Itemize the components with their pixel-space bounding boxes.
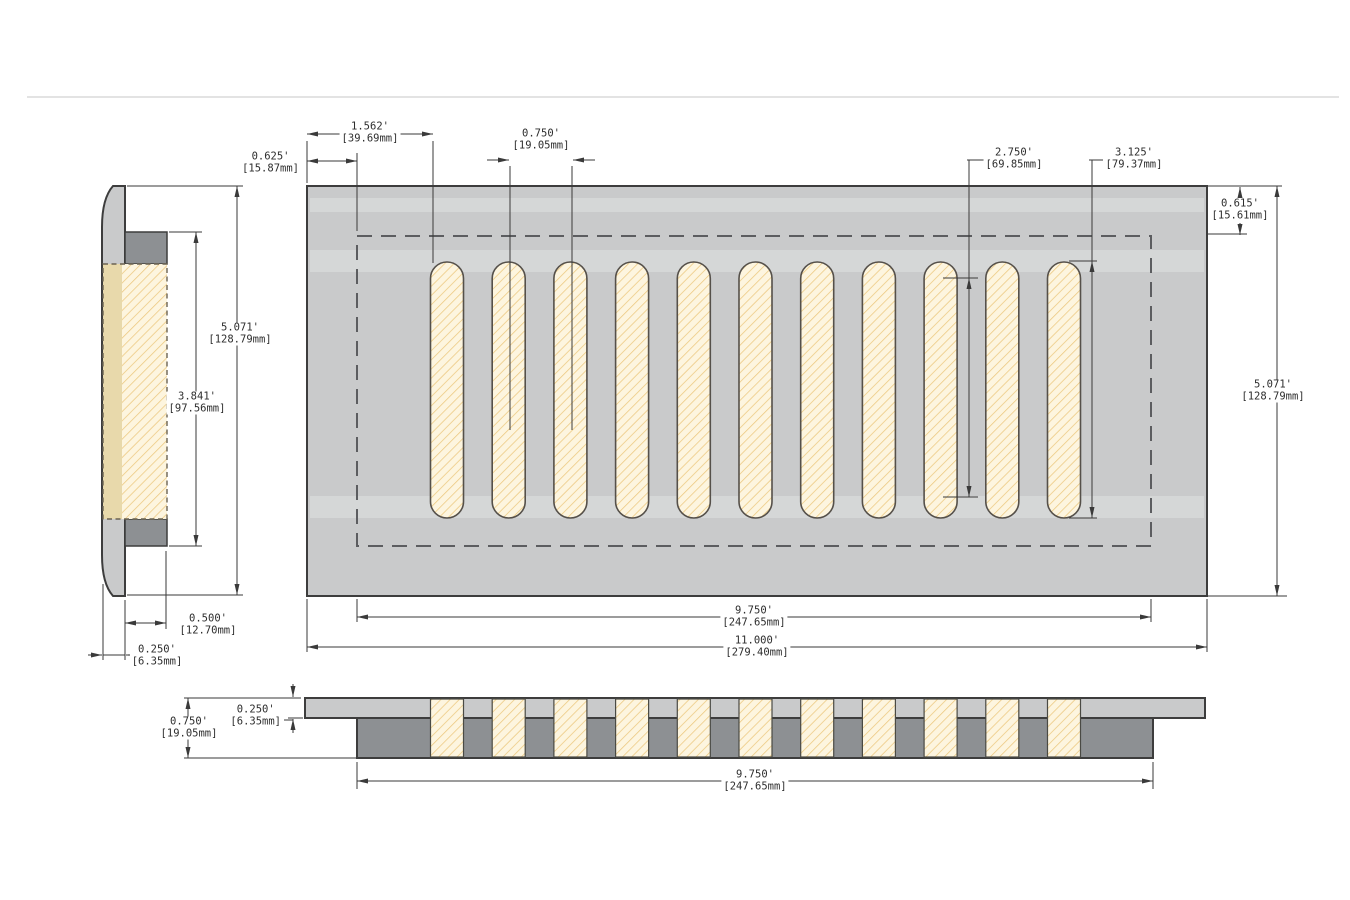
vent-slot [862, 262, 895, 518]
section-slot [739, 699, 772, 757]
dim-value-in: 0.750' [170, 717, 208, 729]
dim-value-mm: [19.05mm] [161, 728, 218, 740]
vent-slot [492, 262, 525, 518]
dim-value-in: 5.071' [1254, 380, 1292, 392]
dim-label-first-slot-offset: 1.562' [39.69mm] [340, 122, 401, 145]
vent-slot [924, 262, 957, 518]
dim-label-top-offset: 0.615' [15.61mm] [1210, 199, 1271, 222]
vent-slot [616, 262, 649, 518]
dim-value-mm: [15.61mm] [1212, 210, 1269, 222]
section-slot [862, 699, 895, 757]
section-slot [924, 699, 957, 757]
dim-value-in: 0.615' [1221, 199, 1259, 211]
dim-label-side-opening-height: 3.841' [97.56mm] [167, 392, 228, 415]
dim-value-in: 9.750' [736, 770, 774, 782]
vent-slot [431, 262, 464, 518]
vent-slot [739, 262, 772, 518]
vent-slot [554, 262, 587, 518]
dim-value-mm: [15.87mm] [242, 163, 299, 175]
collar-top-side [125, 232, 167, 264]
section-slot [431, 699, 464, 757]
dim-value-mm: [128.79mm] [1241, 391, 1304, 403]
duct-strip-side [103, 264, 122, 519]
dim-value-in: 3.841' [178, 392, 216, 404]
dim-value-in: 0.500' [189, 614, 227, 626]
dim-label-slot-inner-length: 2.750' [69.85mm] [984, 148, 1045, 171]
side-view [102, 186, 167, 596]
dim-value-in: 0.750' [522, 129, 560, 141]
section-view [305, 698, 1205, 758]
section-slot [677, 699, 710, 757]
section-slot [492, 699, 525, 757]
dim-label-section-opening-width: 9.750' [247.65mm] [721, 770, 788, 793]
dim-label-plan-height: 5.071' [128.79mm] [1239, 380, 1306, 403]
dim-label-side-face-thickness: 0.250' [6.35mm] [130, 645, 185, 668]
dim-label-collar-depth: 0.500' [12.70mm] [178, 614, 239, 637]
dim-value-mm: [247.65mm] [722, 617, 785, 629]
drawing-linework [0, 0, 1350, 900]
dim-value-in: 11.000' [735, 636, 779, 648]
dim-value-in: 9.750' [735, 606, 773, 618]
vent-slot [986, 262, 1019, 518]
dim-value-mm: [6.35mm] [230, 716, 281, 728]
section-slot [801, 699, 834, 757]
dim-label-left-offset: 0.625' [15.87mm] [240, 152, 301, 175]
dim-value-mm: [97.56mm] [169, 403, 226, 415]
vent-slot [677, 262, 710, 518]
section-slot [616, 699, 649, 757]
dim-label-slot-length: 3.125' [79.37mm] [1104, 148, 1165, 171]
dim-label-slot-pitch: 0.750' [19.05mm] [511, 129, 572, 152]
section-slot [554, 699, 587, 757]
collar-bottom-side [125, 519, 167, 546]
dim-label-side-height: 5.071' [128.79mm] [206, 323, 273, 346]
top-view [307, 186, 1207, 596]
dim-value-in: 3.125' [1115, 148, 1153, 160]
dim-label-overall-width: 11.000' [279.40mm] [723, 636, 790, 659]
dim-value-in: 2.750' [995, 148, 1033, 160]
dim-value-mm: [19.05mm] [513, 140, 570, 152]
dim-value-mm: [79.37mm] [1106, 159, 1163, 171]
dim-value-mm: [247.65mm] [723, 781, 786, 793]
dim-label-plan-opening-width: 9.750' [247.65mm] [720, 606, 787, 629]
dim-value-mm: [128.79mm] [208, 334, 271, 346]
drawing-canvas: 1.562' [39.69mm] 0.625' [15.87mm] 0.750'… [0, 0, 1350, 900]
dim-label-section-thickness: 0.750' [19.05mm] [159, 717, 220, 740]
dim-value-mm: [279.40mm] [725, 647, 788, 659]
vent-slot [1048, 262, 1081, 518]
dim-value-in: 1.562' [351, 122, 389, 134]
dim-value-mm: [39.69mm] [342, 133, 399, 145]
section-slot [1048, 699, 1081, 757]
rect-linework [310, 198, 1204, 212]
dim-value-in: 0.250' [138, 645, 176, 657]
dim-value-mm: [6.35mm] [132, 656, 183, 668]
section-slot [986, 699, 1019, 757]
vent-slot [801, 262, 834, 518]
dim-value-in: 5.071' [221, 323, 259, 335]
dim-label-section-face-thickness: 0.250' [6.35mm] [228, 705, 283, 728]
dim-value-in: 0.250' [237, 705, 275, 717]
dim-value-mm: [12.70mm] [180, 625, 237, 637]
dim-value-mm: [69.85mm] [986, 159, 1043, 171]
dim-value-in: 0.625' [252, 152, 290, 164]
